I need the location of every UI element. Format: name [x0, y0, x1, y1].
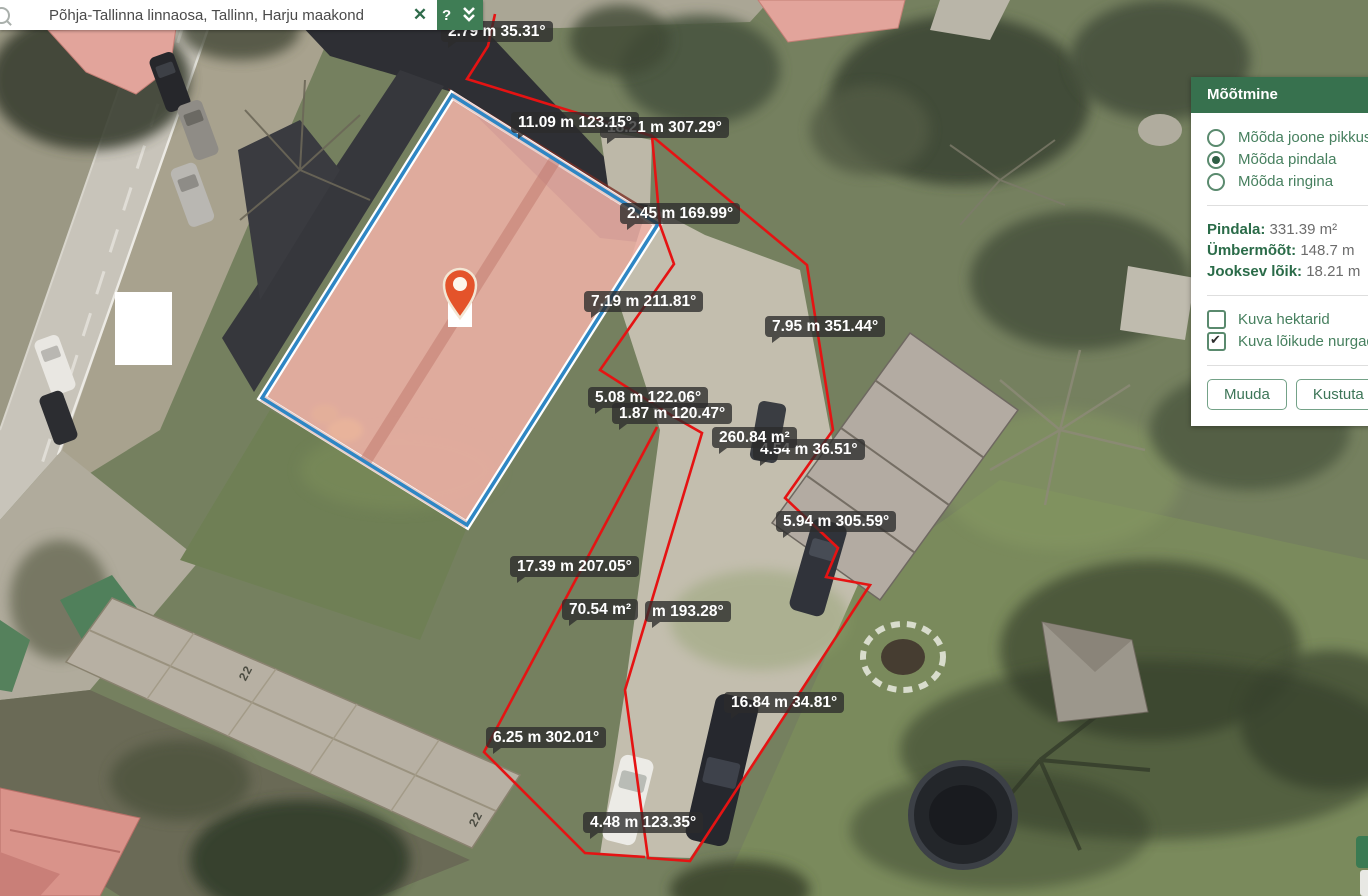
radio-icon[interactable] — [1207, 173, 1225, 191]
checkbox-icon[interactable] — [1207, 310, 1226, 329]
measurement-label: m 193.28° — [645, 601, 731, 622]
radio-icon[interactable] — [1207, 151, 1225, 169]
location-pin-icon — [444, 269, 476, 327]
measurement-label: 5.94 m 305.59° — [776, 511, 896, 532]
measurement-label: 11.09 m 123.15° — [511, 112, 639, 133]
measurement-label: 70.54 m² — [562, 599, 638, 620]
measurement-panel: Mõõtmine Mõõda joone pikkust Mõõda pinda… — [1191, 77, 1368, 426]
result-current-segment: Jooksev lõik: 18.21 m — [1207, 261, 1368, 282]
measurement-label: 2.45 m 169.99° — [620, 203, 740, 224]
panel-title: Mõõtmine — [1191, 77, 1368, 113]
measurement-label: 4.48 m 123.35° — [583, 812, 703, 833]
edit-button[interactable]: Muuda — [1207, 379, 1287, 410]
map-canvas[interactable]: 2.79 m 35.31°11.09 m 123.15°18.21 m 307.… — [0, 0, 1368, 896]
measurement-label: 1.87 m 120.47° — [612, 403, 732, 424]
divider — [1207, 205, 1368, 206]
close-icon[interactable]: ✕ — [403, 0, 437, 30]
measurement-label: 6.25 m 302.01° — [486, 727, 606, 748]
checkbox-show-hectares[interactable]: Kuva hektarid — [1207, 309, 1368, 330]
measurement-label: 16.84 m 34.81° — [724, 692, 844, 713]
radio-measure-line[interactable]: Mõõda joone pikkust — [1207, 127, 1368, 148]
checkbox-icon[interactable] — [1207, 332, 1226, 351]
search-input[interactable]: Põhja-Tallinna linnaosa, Tallinn, Harju … — [0, 0, 437, 30]
measurement-label: 7.19 m 211.81° — [584, 291, 703, 312]
search-bar: Põhja-Tallinna linnaosa, Tallinn, Harju … — [0, 0, 483, 30]
radio-measure-area[interactable]: Mõõda pindala — [1207, 149, 1368, 170]
radio-icon[interactable] — [1207, 129, 1225, 147]
search-value[interactable]: Põhja-Tallinna linnaosa, Tallinn, Harju … — [10, 7, 403, 24]
search-icon — [0, 7, 10, 24]
measurement-label: 260.84 m² — [712, 427, 797, 448]
measurement-label: 7.95 m 351.44° — [765, 316, 885, 337]
checkbox-show-segment-angles[interactable]: Kuva lõikude nurgad ja — [1207, 331, 1368, 352]
blank-overlay-box — [115, 292, 172, 365]
radio-measure-circle[interactable]: Mõõda ringina — [1207, 171, 1368, 192]
help-button[interactable]: ? — [440, 7, 451, 24]
map-corner-button[interactable] — [1356, 836, 1368, 868]
delete-button[interactable]: Kustuta — [1296, 379, 1368, 410]
divider — [1207, 365, 1368, 366]
collapse-chevron-icon[interactable] — [458, 4, 480, 26]
result-area: Pindala: 331.39 m² — [1207, 219, 1368, 240]
divider — [1207, 295, 1368, 296]
measurement-label: 17.39 m 207.05° — [510, 556, 639, 577]
map-corner-button-secondary[interactable] — [1360, 870, 1368, 896]
result-perimeter: Ümbermõõt: 148.7 m — [1207, 240, 1368, 261]
